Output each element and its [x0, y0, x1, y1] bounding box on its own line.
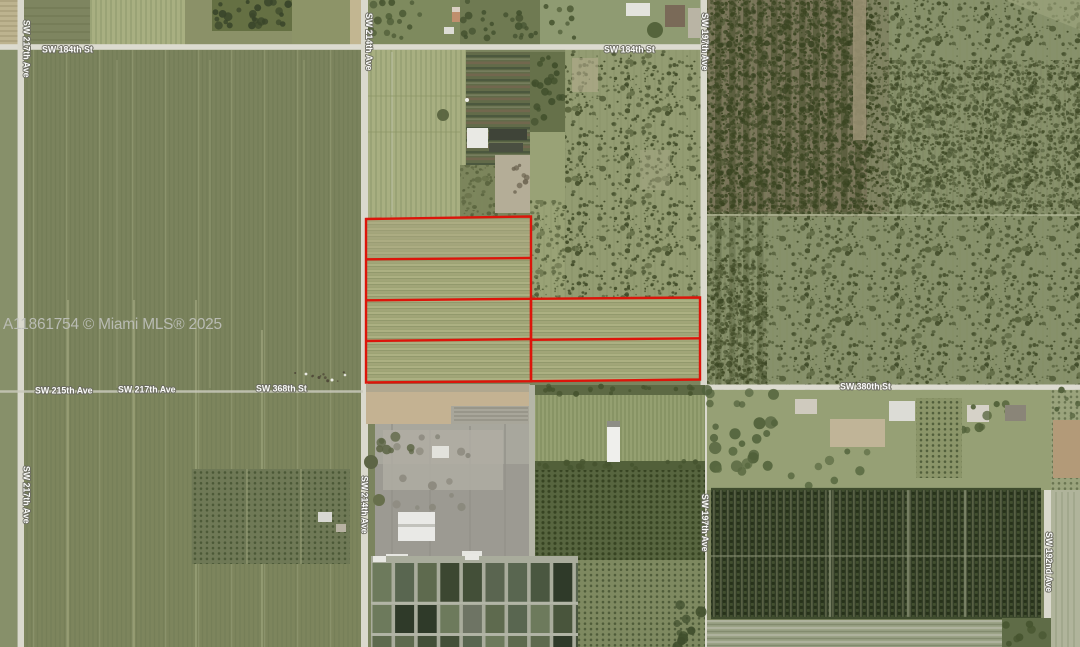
svg-text:SW 215th Ave: SW 215th Ave	[35, 386, 93, 396]
svg-text:SW 214th Ave: SW 214th Ave	[364, 13, 374, 71]
svg-text:SW 184th St: SW 184th St	[604, 45, 655, 55]
svg-text:SW 192nd Ave: SW 192nd Ave	[1044, 532, 1054, 592]
svg-text:SW 214th Ave: SW 214th Ave	[360, 476, 370, 534]
svg-text:SW 217th Ave: SW 217th Ave	[22, 20, 32, 78]
svg-text:SW 197th Ave: SW 197th Ave	[700, 13, 710, 71]
svg-text:SW 197th Ave: SW 197th Ave	[700, 494, 710, 552]
svg-text:SW 217th Ave: SW 217th Ave	[118, 385, 176, 395]
svg-text:SW 184th St: SW 184th St	[42, 45, 93, 55]
svg-text:SW 368th St: SW 368th St	[256, 384, 307, 394]
svg-text:SW 380th St: SW 380th St	[840, 382, 891, 392]
svg-text:A11861754 © Miami MLS® 2025: A11861754 © Miami MLS® 2025	[3, 316, 222, 333]
svg-text:SW 217th Ave: SW 217th Ave	[22, 466, 32, 524]
